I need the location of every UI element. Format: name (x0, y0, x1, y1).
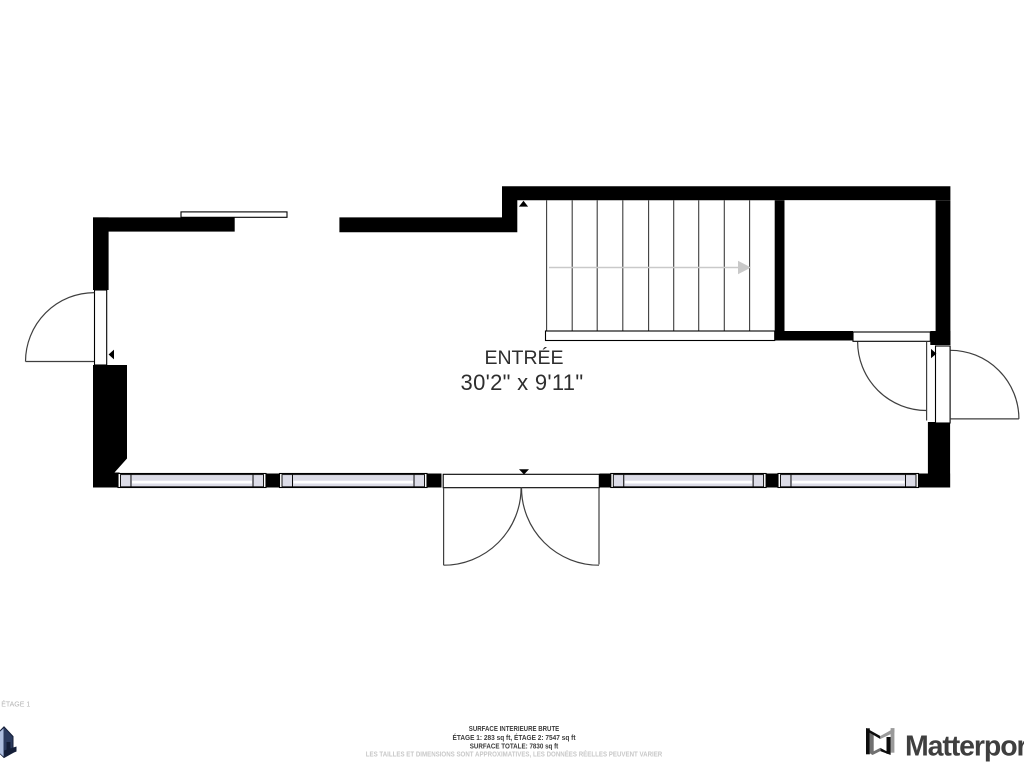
svg-text:Matterport: Matterport (905, 730, 1024, 762)
svg-text:ÉTAGE 1: ÉTAGE 1 (1, 699, 30, 708)
svg-text:ENTRÉE: ENTRÉE (484, 346, 563, 369)
svg-text:30'2" x 9'11": 30'2" x 9'11" (461, 370, 584, 395)
svg-text:SURFACE INTERIEURE BRUTE: SURFACE INTERIEURE BRUTE (469, 724, 560, 733)
svg-text:LES TAILLES ET DIMENSIONS SONT: LES TAILLES ET DIMENSIONS SONT APPROXIMA… (366, 749, 663, 758)
